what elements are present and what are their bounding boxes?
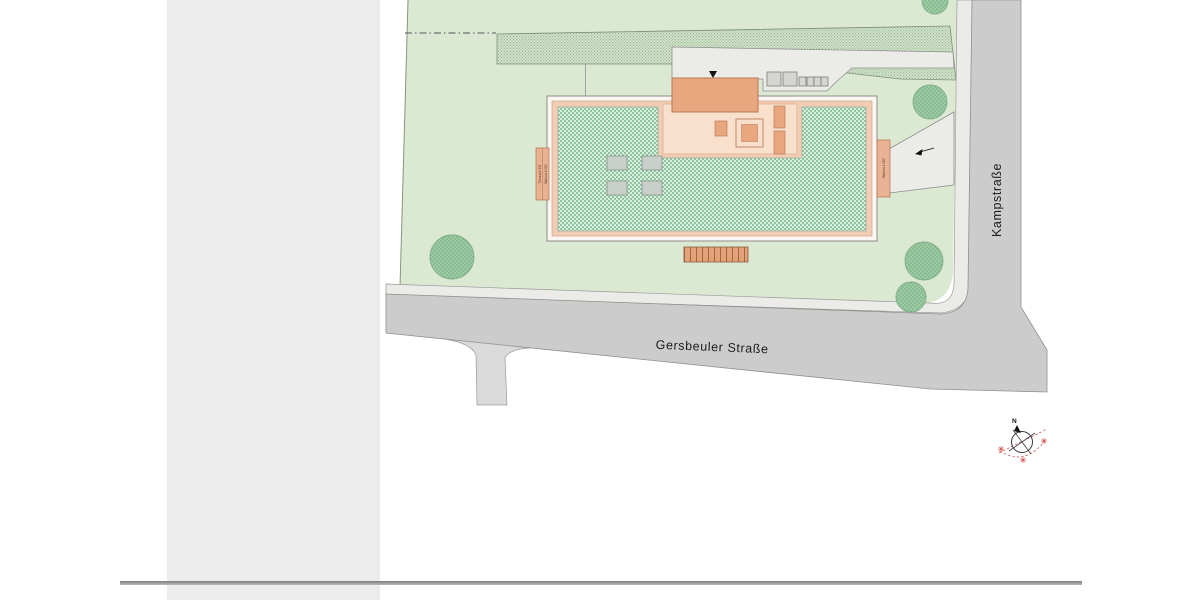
balcony-label: Balkon 1.OG [882,158,886,178]
stair-entrance [684,247,748,262]
left-panel [167,0,380,600]
balcony-label: Balkon 1.OG [544,164,548,184]
north-label: N [1012,418,1017,425]
courtyard-element [715,121,727,136]
tree [905,242,943,280]
tree [430,235,474,279]
courtyard-element [774,106,785,128]
street-stub [444,339,530,405]
courtyard-element [742,125,758,142]
tree [896,282,926,312]
entrance-canopy [672,78,758,112]
compass-rose: N [998,418,1047,463]
divider-line [120,581,1082,585]
courtyard-element [774,131,785,154]
balcony-strip-right: Balkon 1.OG [877,140,890,197]
street-label-kampstrasse: Kampstraße [990,163,1004,237]
tree [913,85,947,119]
north-needle-icon [1014,425,1021,433]
terrace-label: Terrasse EG [538,164,542,183]
site-plan: Terrasse EG Balkon 1.OG Balkon 1.OG Gers… [375,0,1065,475]
terrace-strip-left: Terrasse EG Balkon 1.OG [536,148,549,200]
